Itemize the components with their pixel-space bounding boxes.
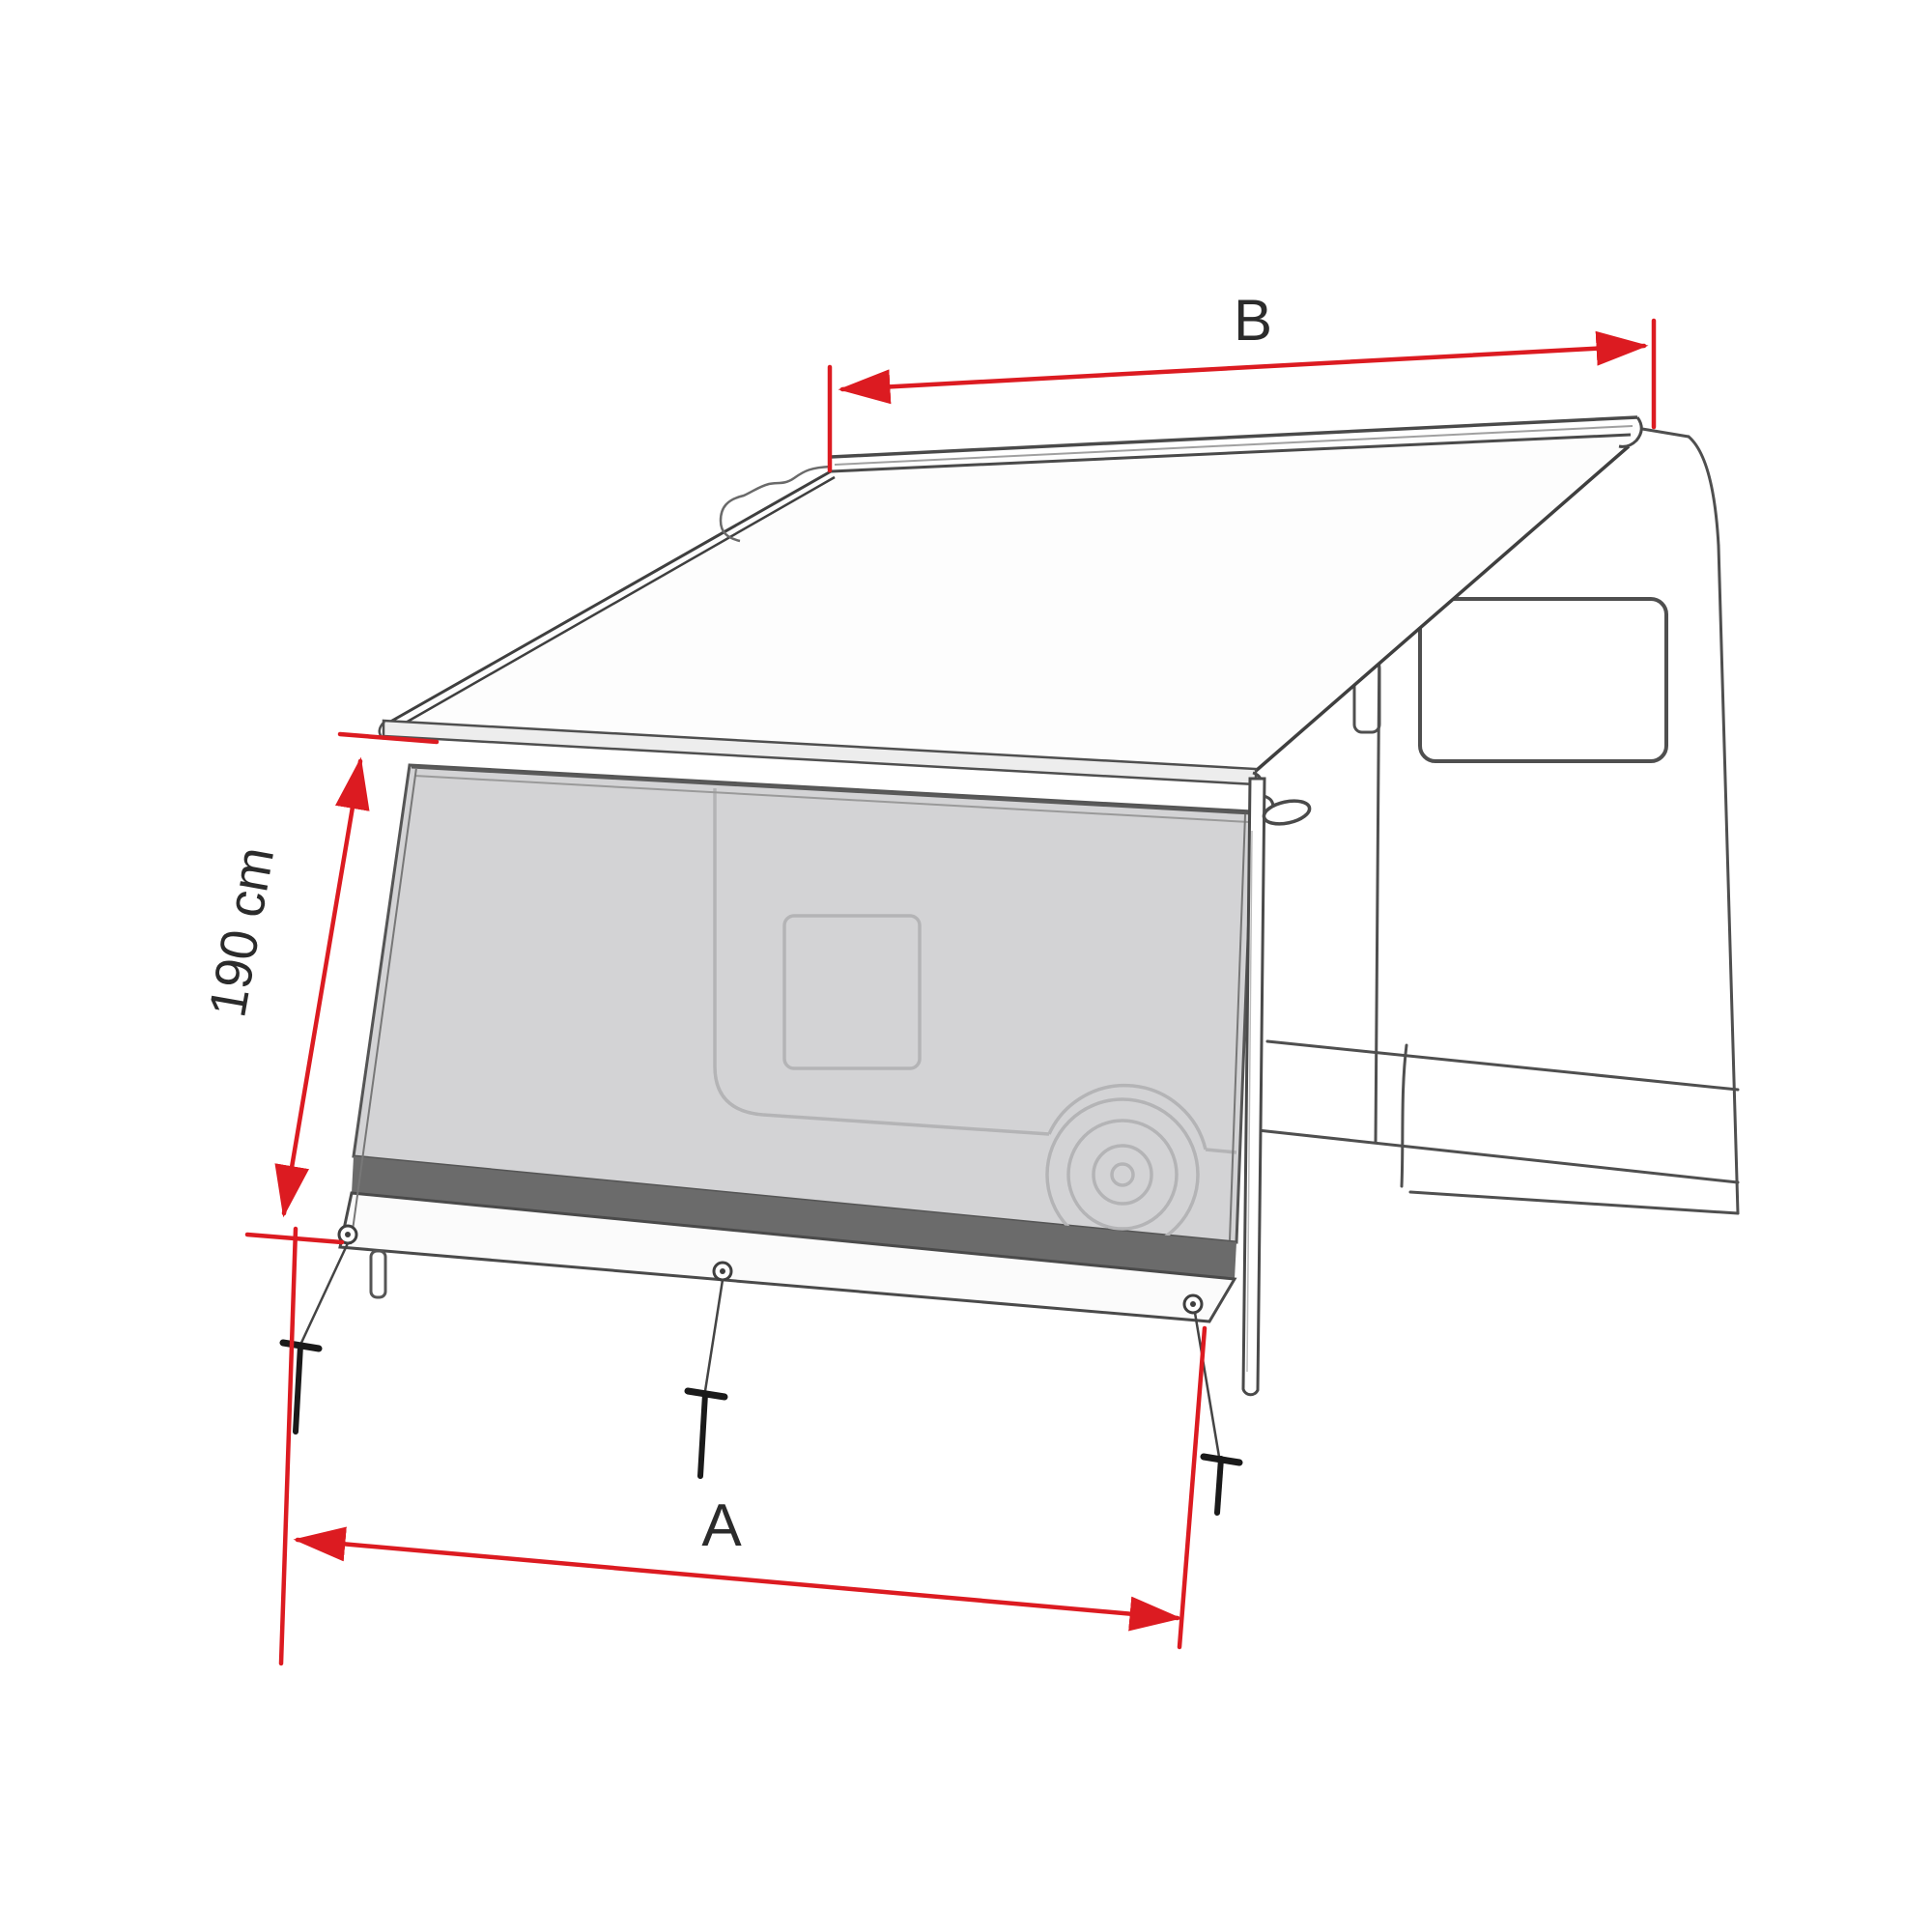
rv-bottom-edge bbox=[1410, 1192, 1738, 1213]
peg-left-shaft bbox=[296, 1346, 300, 1432]
dim-a-label: A bbox=[701, 1492, 742, 1559]
dim-a-extension-left bbox=[281, 1229, 296, 1663]
dim-height-label: 190 cm bbox=[198, 842, 285, 1021]
peg-center-shaft bbox=[700, 1394, 705, 1476]
peg-right-shaft bbox=[1217, 1459, 1221, 1513]
rv-side-window bbox=[1420, 599, 1666, 761]
front-panel bbox=[339, 765, 1253, 1321]
panel-strap-loop bbox=[371, 1251, 385, 1297]
awning-leg bbox=[1243, 779, 1312, 1395]
rv-rear-top-corner bbox=[1689, 437, 1719, 546]
rv-rear-edge bbox=[1719, 546, 1738, 1213]
grommet-center-hole bbox=[720, 1268, 725, 1274]
awning-dimension-diagram: B 190 cm A bbox=[0, 0, 1932, 1932]
guy-line-center bbox=[705, 1280, 723, 1391]
crank-hook-eyelet bbox=[1262, 797, 1312, 827]
rv-panel-seam bbox=[1402, 1045, 1406, 1186]
rv-belt-line-upper bbox=[1267, 1041, 1738, 1090]
grommet-left-hole bbox=[345, 1232, 351, 1237]
dim-b-label: B bbox=[1234, 288, 1272, 353]
diagram-canvas: B 190 cm A bbox=[0, 0, 1932, 1932]
dim-a-extension-right bbox=[1179, 1328, 1205, 1647]
dim-height-arrow bbox=[284, 761, 360, 1213]
rv-belt-line-lower bbox=[1258, 1130, 1738, 1182]
grommet-right-hole bbox=[1190, 1301, 1196, 1307]
rv-roof-line bbox=[1642, 429, 1689, 437]
guy-line-left bbox=[301, 1243, 348, 1343]
